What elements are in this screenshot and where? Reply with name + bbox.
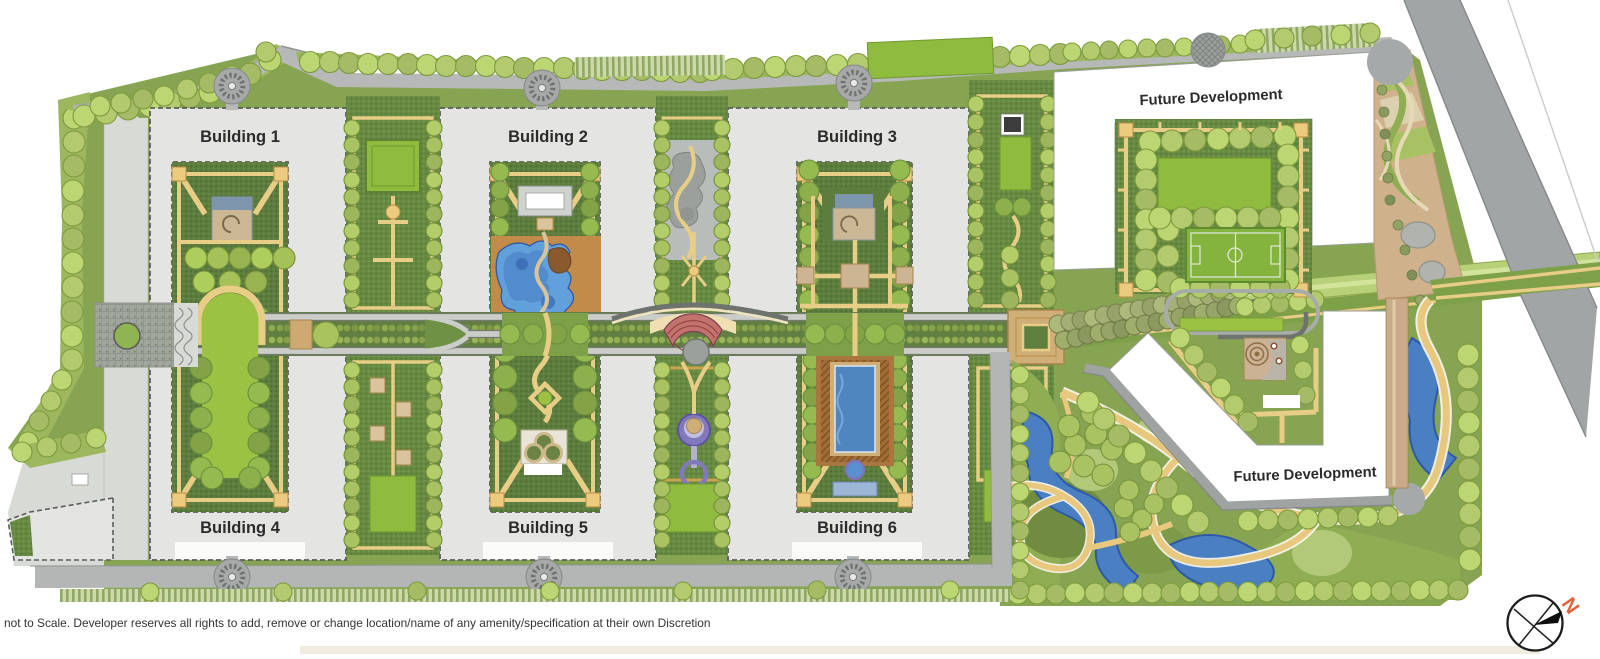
- svg-text:Building 4: Building 4: [200, 519, 281, 537]
- svg-text:Building 5: Building 5: [508, 519, 588, 537]
- svg-text:Building 3: Building 3: [817, 128, 897, 146]
- svg-text:Building 1: Building 1: [200, 128, 280, 146]
- svg-text:Building 2: Building 2: [508, 128, 588, 146]
- svg-text:not to Scale. Developer reserv: not to Scale. Developer reserves all rig…: [4, 616, 711, 630]
- svg-text:Building 6: Building 6: [817, 519, 897, 537]
